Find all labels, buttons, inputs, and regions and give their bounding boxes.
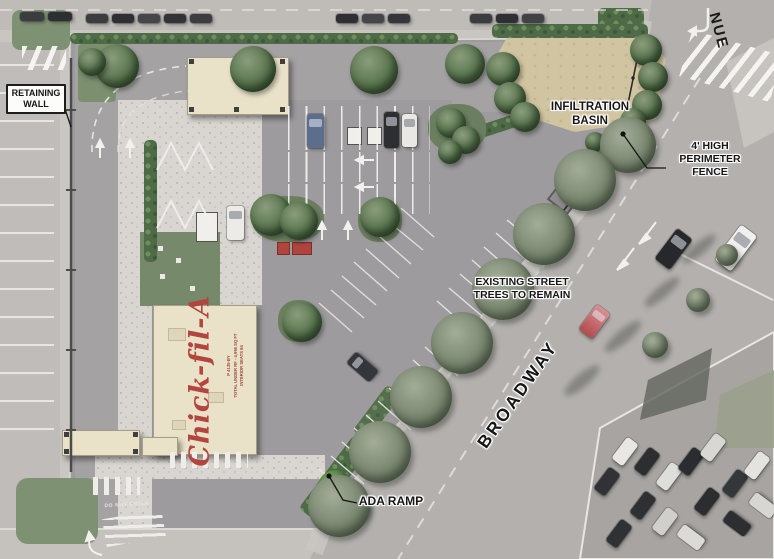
- tree-shadow: [641, 273, 682, 310]
- site-tree: [280, 202, 318, 240]
- canopy-column: [64, 432, 69, 437]
- parked-car: [112, 14, 134, 23]
- parked-car: [227, 206, 244, 240]
- site-tree: [282, 302, 322, 342]
- existing-street-tree: [390, 366, 452, 428]
- lot-car: [611, 437, 638, 467]
- street-tree: [78, 48, 106, 76]
- parked-car: [164, 14, 186, 23]
- lot-car: [722, 510, 752, 537]
- drive-thru-canopy-south: [62, 430, 140, 456]
- patio-table: [158, 246, 163, 251]
- top-drive-lane: [118, 42, 470, 100]
- parked-car: [470, 14, 492, 23]
- east-side-tree: [642, 332, 668, 358]
- street-car: [654, 228, 692, 270]
- order-canopy-red: [292, 242, 312, 255]
- hedge-top: [70, 33, 458, 44]
- existing-street-tree: [349, 421, 411, 483]
- existing-street-tree: [513, 203, 575, 265]
- canopy-column: [133, 432, 138, 437]
- lot-car: [593, 467, 620, 497]
- patio-table: [176, 258, 181, 263]
- lot-car: [605, 519, 632, 549]
- gravel-patch: [714, 370, 774, 448]
- retaining-wall-label: RETAINING WALL: [6, 84, 66, 114]
- street-tree: [350, 46, 398, 94]
- tree-shadow: [601, 317, 645, 357]
- parked-car-blue: [307, 114, 324, 148]
- parked-car: [20, 12, 44, 21]
- site-tree: [360, 197, 400, 237]
- parking-stalls-row: [288, 152, 430, 182]
- parked-car: [190, 14, 212, 23]
- canopy-column: [280, 107, 285, 112]
- lot-car: [676, 524, 706, 551]
- site-tree: [438, 140, 462, 164]
- lot-car: [651, 507, 678, 537]
- street-tree: [445, 44, 485, 84]
- perimeter-fence-label: 4' HIGH PERIMETER FENCE: [664, 140, 756, 178]
- lot-car: [693, 487, 720, 517]
- basin-tree: [638, 62, 668, 92]
- parked-car: [496, 14, 518, 23]
- hatched-crosswalk: [22, 46, 66, 70]
- parked-car: [362, 14, 384, 23]
- brand-script-text: Chick-fil-A: [185, 294, 216, 466]
- parked-car: [384, 112, 399, 148]
- east-side-tree: [716, 244, 738, 266]
- canopy-column: [189, 107, 194, 112]
- parked-car: [138, 14, 160, 23]
- parked-car: [388, 14, 410, 23]
- lot-car: [748, 492, 774, 519]
- canopy-column: [280, 59, 285, 64]
- parked-car: [336, 14, 358, 23]
- existing-street-tree: [431, 312, 493, 374]
- lot-car: [629, 491, 656, 521]
- parked-car: [48, 12, 72, 21]
- lot-car: [633, 447, 660, 477]
- canopy-column: [234, 107, 239, 112]
- existing-trees-label: EXISTING STREET TREES TO REMAIN: [462, 276, 582, 302]
- infiltration-basin-label: INFILTRATION BASIN: [510, 100, 670, 128]
- street-parking-stalls: [0, 64, 54, 456]
- existing-street-tree: [554, 149, 616, 211]
- basin-tree: [486, 52, 520, 86]
- crosswalk: [93, 477, 140, 495]
- parked-car: [522, 14, 544, 23]
- site-plan-canvas: Chick-fil-A P 4135-BY TOTAL UNDER RF - 4…: [0, 0, 774, 559]
- canopy-column: [189, 59, 194, 64]
- canopy-column: [64, 449, 69, 454]
- ada-ramp-label: ADA RAMP: [356, 494, 426, 509]
- patio-shade-structure: [196, 212, 218, 242]
- lot-car: [699, 433, 726, 463]
- tree-shadow: [561, 361, 603, 399]
- parked-car: [402, 114, 417, 147]
- canopy-column: [133, 449, 138, 454]
- patio-table: [190, 286, 195, 291]
- order-canopy-red: [277, 242, 290, 255]
- basin-tree: [630, 34, 662, 66]
- parked-car: [86, 14, 108, 23]
- street-car-red: [578, 304, 610, 339]
- parked-car: [346, 351, 378, 382]
- patio-table: [160, 274, 165, 279]
- street-tree: [230, 46, 276, 92]
- building-annotation-text: P 4135-BY TOTAL UNDER RF - 4,996 SQ FT I…: [226, 313, 246, 418]
- dark-roof: [640, 348, 712, 420]
- east-side-tree: [686, 288, 710, 312]
- lawn-bottom-left: [16, 478, 98, 544]
- hedge-west-column: [144, 140, 157, 262]
- hedge-basin-top: [492, 24, 648, 38]
